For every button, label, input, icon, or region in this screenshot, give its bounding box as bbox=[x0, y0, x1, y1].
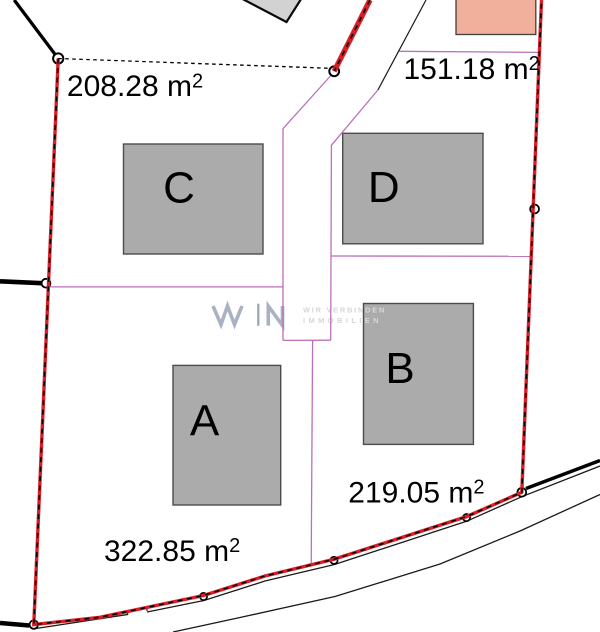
svg-text:151.18 m2: 151.18 m2 bbox=[404, 53, 540, 86]
svg-text:D: D bbox=[368, 163, 400, 212]
svg-text:322.85 m2: 322.85 m2 bbox=[104, 535, 240, 568]
svg-text:A: A bbox=[190, 396, 220, 445]
svg-text:B: B bbox=[385, 344, 414, 393]
svg-text:C: C bbox=[163, 163, 195, 212]
svg-text:IMMOBILIEN: IMMOBILIEN bbox=[303, 316, 382, 325]
svg-text:208.28 m2: 208.28 m2 bbox=[67, 70, 203, 103]
svg-text:219.05 m2: 219.05 m2 bbox=[348, 476, 484, 509]
svg-text:WIR VERBINDEN: WIR VERBINDEN bbox=[303, 305, 386, 314]
